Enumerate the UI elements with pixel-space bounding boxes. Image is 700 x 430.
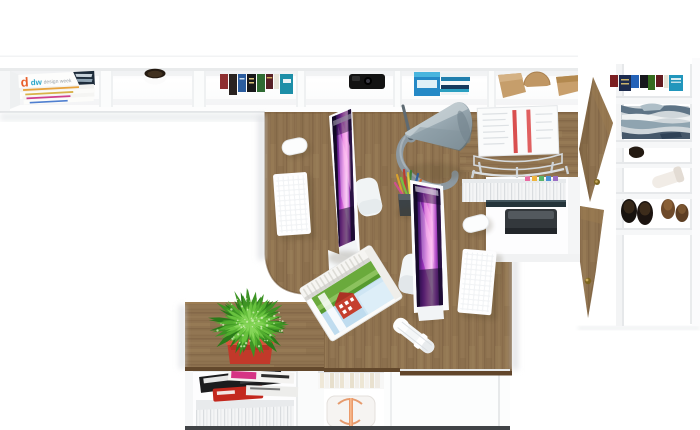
svg-text:dw: dw xyxy=(30,78,42,88)
